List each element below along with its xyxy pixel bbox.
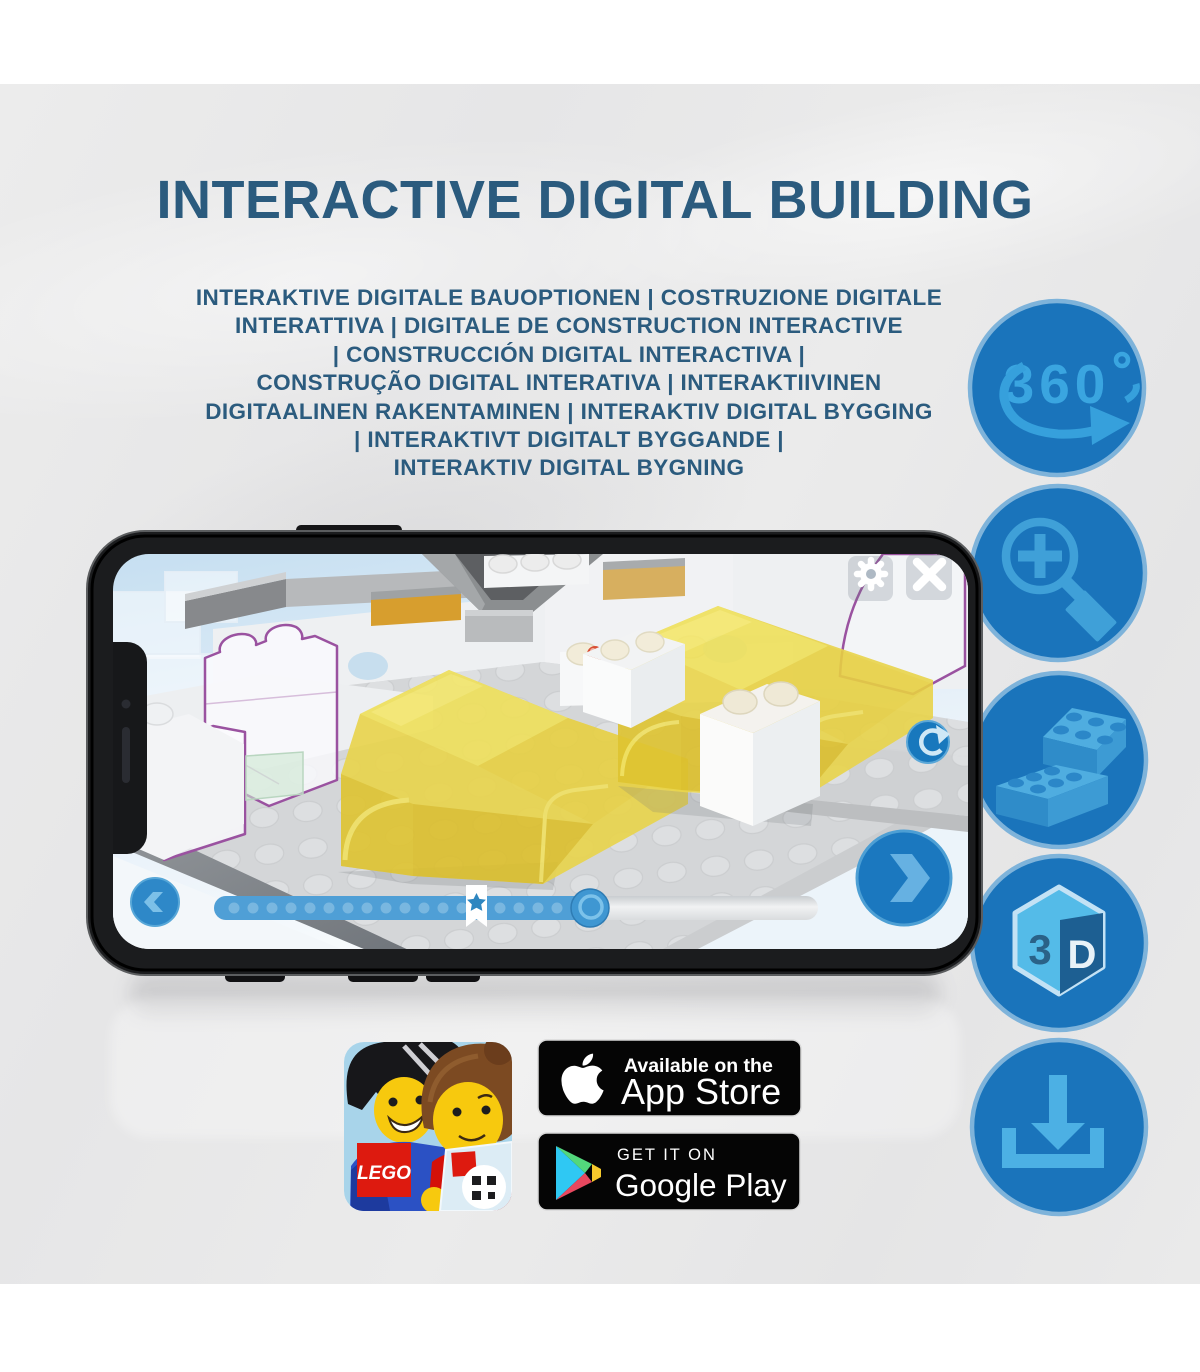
- svg-text:3: 3: [1028, 926, 1051, 973]
- svg-text:LEGO: LEGO: [357, 1163, 411, 1184]
- svg-text:D: D: [1068, 933, 1097, 977]
- svg-text:App Store: App Store: [621, 1071, 781, 1112]
- svg-text:360: 360: [1004, 353, 1111, 415]
- svg-text:GET IT ON: GET IT ON: [617, 1146, 717, 1164]
- svg-text:Google Play: Google Play: [615, 1167, 787, 1203]
